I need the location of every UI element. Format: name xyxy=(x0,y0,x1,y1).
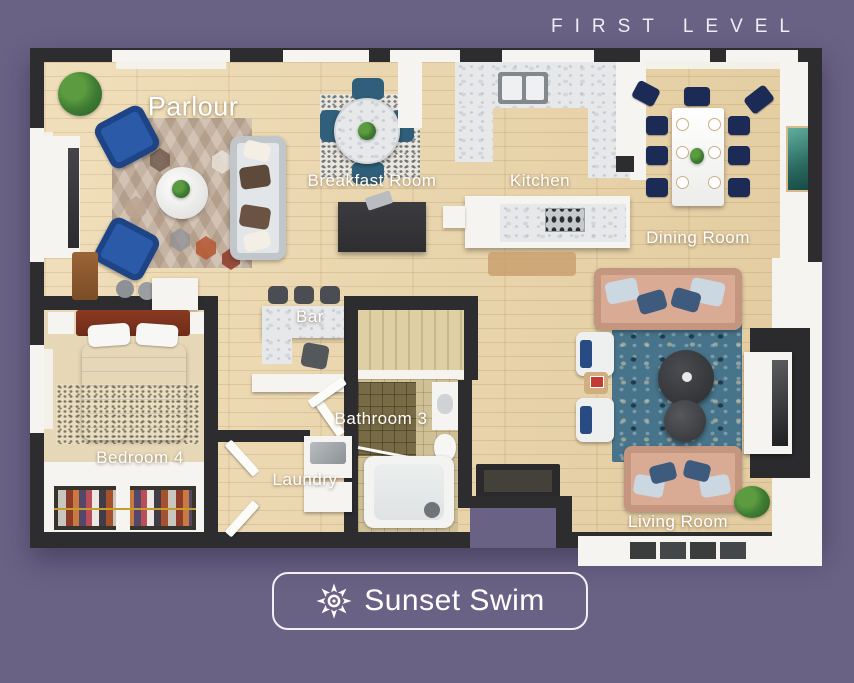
table-flowers xyxy=(172,180,190,198)
pillow xyxy=(239,164,272,190)
wall-stairs-top xyxy=(344,296,478,310)
window xyxy=(640,50,710,62)
plate xyxy=(708,146,721,159)
pantry-cabinet xyxy=(398,62,422,128)
dining-wall-stub xyxy=(616,62,634,160)
bar-stool xyxy=(268,286,288,304)
plate xyxy=(708,118,721,131)
armchair-cushion xyxy=(580,340,592,368)
game-box xyxy=(590,376,604,388)
window xyxy=(112,50,230,62)
staircase xyxy=(358,310,464,370)
logo: Sunset Swim xyxy=(272,572,588,630)
wall-bathroom-right xyxy=(458,380,472,508)
bar-stool xyxy=(320,286,340,304)
bed-duvet xyxy=(82,344,186,440)
bar-chair xyxy=(300,342,330,370)
plant xyxy=(58,72,102,116)
window-sill xyxy=(644,62,794,69)
room-label-laundry: Laundry xyxy=(273,470,338,490)
dining-chair xyxy=(646,116,668,135)
dining-chair xyxy=(728,146,750,165)
logo-text: Sunset Swim xyxy=(364,584,545,618)
plate xyxy=(708,176,721,189)
kitchen-mat xyxy=(488,252,576,276)
plant xyxy=(734,486,770,518)
buffet-island xyxy=(338,202,426,252)
wall-stairs-right xyxy=(464,310,478,380)
stove xyxy=(545,208,585,232)
entry-cutout xyxy=(470,508,556,548)
room-label-dining-room: Dining Room xyxy=(646,228,750,248)
wall-stairs-left xyxy=(344,310,358,380)
plate xyxy=(676,176,689,189)
wall-bedroom-right xyxy=(204,296,218,532)
bar-counter xyxy=(262,336,292,364)
stair-landing xyxy=(358,370,464,379)
room-label-living-room: Living Room xyxy=(628,512,728,532)
wall-entry-top xyxy=(462,496,558,508)
side-cabinet xyxy=(72,252,98,300)
pillow xyxy=(87,323,130,348)
pillow xyxy=(238,204,271,230)
room-label-bar: Bar xyxy=(296,307,324,327)
window xyxy=(30,345,44,433)
nightstand xyxy=(48,312,74,334)
dining-chair xyxy=(684,87,710,106)
dining-chair xyxy=(646,178,668,197)
window xyxy=(30,128,44,262)
dining-chair-breakfast xyxy=(352,78,384,100)
room-label-bathroom-3: Bathroom 3 xyxy=(335,409,428,429)
island-cube xyxy=(443,206,465,228)
kitchen-counter xyxy=(455,108,493,162)
entry-console-top xyxy=(484,470,552,492)
plate xyxy=(676,146,689,159)
window xyxy=(390,50,460,62)
wall-entry-right xyxy=(556,496,572,548)
room-label-bedroom-4: Bedroom 4 xyxy=(96,448,184,468)
room-label-parlour: Parlour xyxy=(148,92,239,123)
armchair-cushion xyxy=(580,406,592,434)
dining-chair xyxy=(728,116,750,135)
game-table xyxy=(152,278,198,310)
window-sill xyxy=(44,349,53,429)
centerpiece xyxy=(358,122,376,140)
porch-window xyxy=(660,542,686,559)
dining-chair xyxy=(728,178,750,197)
level-label: FIRST LEVEL xyxy=(551,16,802,38)
pillow xyxy=(135,323,178,348)
sink-basin xyxy=(502,76,522,100)
stool xyxy=(116,280,134,298)
wall-stub-cap xyxy=(616,156,634,172)
tv-screen xyxy=(68,148,79,248)
porch-window xyxy=(720,542,746,559)
wall-artwork xyxy=(786,126,810,192)
window-sill xyxy=(116,62,226,69)
room-label-kitchen: Kitchen xyxy=(510,171,570,191)
table-decor xyxy=(682,372,692,382)
dining-centerpiece xyxy=(690,148,704,164)
tv-screen xyxy=(772,360,788,446)
sink-basin xyxy=(526,76,544,100)
window xyxy=(283,50,369,62)
dining-chair xyxy=(646,146,668,165)
porch-window xyxy=(630,542,656,559)
plate xyxy=(676,118,689,131)
sunburst-icon xyxy=(315,582,353,620)
nightstand xyxy=(188,312,204,334)
window xyxy=(726,50,798,62)
vanity-sink xyxy=(437,394,453,414)
wall-dining-right xyxy=(808,48,822,262)
floor-plan-page: FIRST LEVEL xyxy=(0,0,854,683)
bath-mat xyxy=(424,502,440,518)
bar-stool xyxy=(294,286,314,304)
coffee-table xyxy=(664,400,706,442)
window xyxy=(502,50,594,62)
closet-rod xyxy=(54,508,196,510)
washer-top xyxy=(310,442,346,464)
porch-window xyxy=(690,542,716,559)
room-label-breakfast-room: Breakfast Room xyxy=(308,171,437,191)
